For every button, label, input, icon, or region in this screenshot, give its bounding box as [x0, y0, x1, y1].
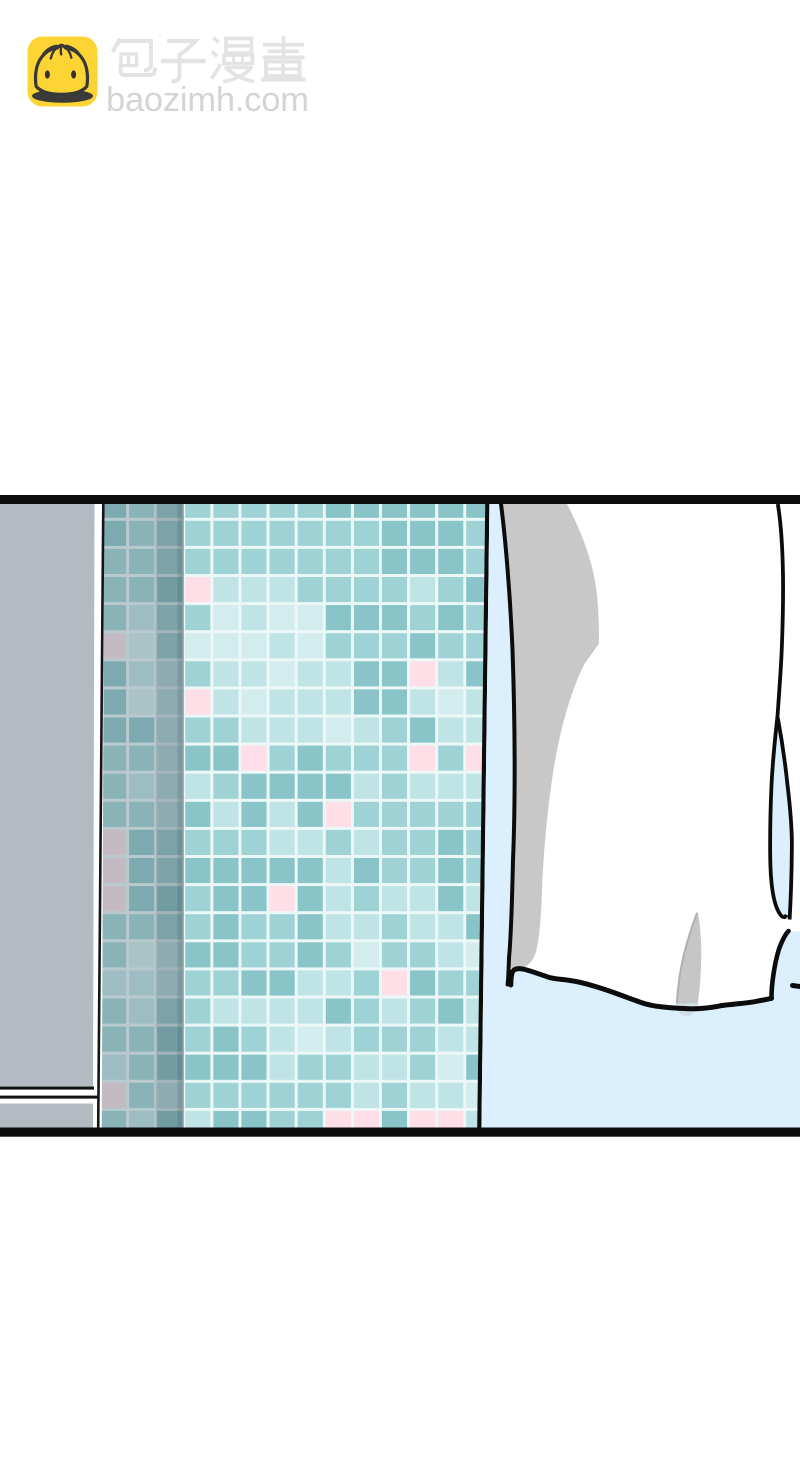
svg-text:baozimh.com: baozimh.com — [106, 81, 309, 119]
